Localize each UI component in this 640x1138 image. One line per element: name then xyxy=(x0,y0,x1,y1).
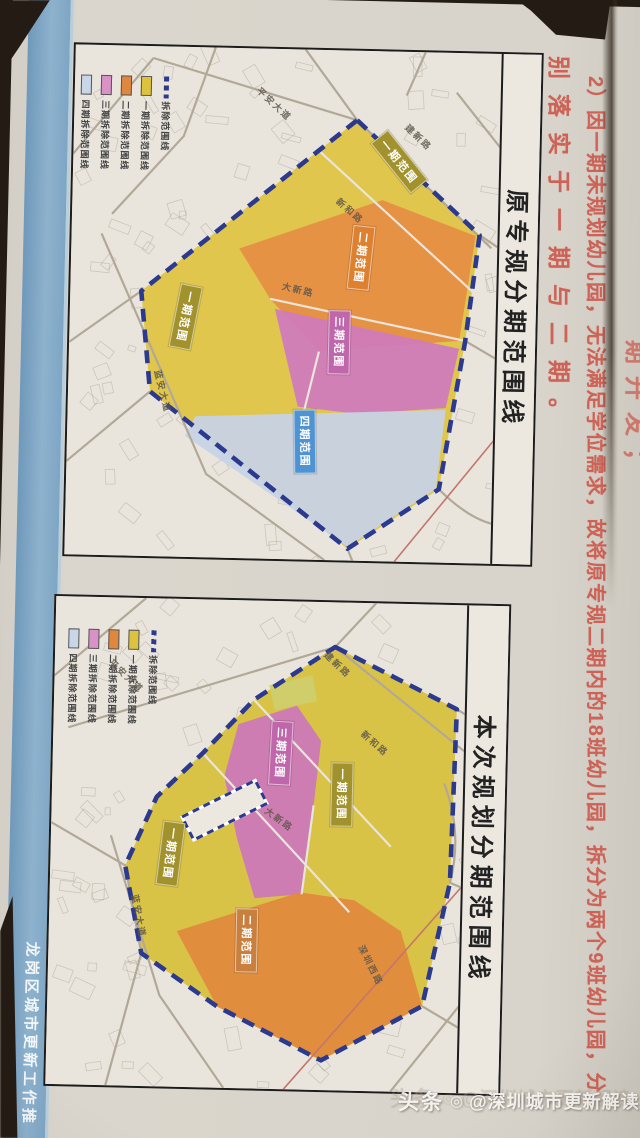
legend-swatch xyxy=(108,629,119,649)
watermark-handle: @深圳城市更新解读 xyxy=(469,1088,640,1114)
phase-badge: 一期范围 xyxy=(330,762,353,826)
map-title: 本次规划分期范围线 xyxy=(463,714,504,985)
handwritten-note-line2: 别落实于一期与二期。 xyxy=(544,56,578,486)
legend-swatch xyxy=(128,630,139,650)
phase-badge: 四期范围 xyxy=(293,409,316,473)
legend-item: 拆除范围线 xyxy=(159,76,175,191)
map-overlay: 四期拆除范围线三期拆除范围线二期拆除范围线一期拆除范围线拆除范围线三期范围一期范… xyxy=(45,596,467,1093)
legend-swatch xyxy=(81,74,92,94)
road-label: 蓝安大道 xyxy=(129,893,150,939)
phase-badge: 一期范围 xyxy=(156,821,186,887)
strip-caption: 龙岗区城市更新工作推 xyxy=(18,941,43,1126)
legend-label: 四期拆除范围线 xyxy=(65,653,80,723)
legend-swatch xyxy=(68,628,79,648)
toutiao-logo-icon: ◎ xyxy=(450,1092,463,1110)
legend-label: 二期拆除范围线 xyxy=(118,100,133,170)
legend-item: 四期拆除范围线 xyxy=(66,628,82,743)
handwritten-note-partial: 期开发； xyxy=(621,340,640,560)
watermark: 头条 ◎ @深圳城市更新解读 xyxy=(398,1086,640,1116)
legend-item: 三期拆除范围线 xyxy=(86,629,102,744)
legend-label: 四期拆除范围线 xyxy=(78,99,93,169)
legend-label: 拆除范围线 xyxy=(158,101,172,151)
legend-item: 二期拆除范围线 xyxy=(119,75,135,190)
phase-badge: 三期范围 xyxy=(327,310,350,374)
watermark-brand: 头条 xyxy=(398,1086,444,1116)
map-legend: 四期拆除范围线三期拆除范围线二期拆除范围线一期拆除范围线拆除范围线 xyxy=(66,628,162,745)
map-area: 四期拆除范围线三期拆除范围线二期拆除范围线一期拆除范围线拆除范围线三期范围一期范… xyxy=(45,596,467,1093)
road-label: 新和路 xyxy=(333,195,366,227)
legend-label: 三期拆除范围线 xyxy=(85,654,100,724)
legend-dash-icon xyxy=(164,76,169,98)
legend-swatch xyxy=(141,76,152,96)
legend-item: 拆除范围线 xyxy=(146,630,162,745)
phase-badge: 三期范围 xyxy=(268,721,294,786)
legend-label: 三期拆除范围线 xyxy=(98,100,113,170)
map-legend: 四期拆除范围线三期拆除范围线二期拆除范围线一期拆除范围线拆除范围线 xyxy=(79,74,175,191)
legend-swatch xyxy=(101,75,112,95)
road-label: 建新路 xyxy=(321,648,354,680)
road-label: 大新路 xyxy=(281,279,316,299)
map-panel-current-plan: 四期拆除范围线三期拆除范围线二期拆除范围线一期拆除范围线拆除范围线三期范围一期范… xyxy=(43,594,511,1096)
legend-item: 四期拆除范围线 xyxy=(79,74,95,189)
photo-stage: 龙岗区城市更新工作推 四期拆除范围线三期拆除范围线二期拆除范围线一期拆除范围线拆… xyxy=(0,0,640,1138)
road-label: 平安大道 xyxy=(254,84,295,124)
legend-swatch xyxy=(88,629,99,649)
legend-item: 二期拆除范围线 xyxy=(106,629,122,744)
phase-badge: 一期范围 xyxy=(169,283,203,350)
road-label: 深圳西路 xyxy=(355,943,386,988)
road-label: 蓝安大道 xyxy=(151,368,174,414)
map-panel-original-plan: 四期拆除范围线三期拆除范围线二期拆除范围线一期拆除范围线拆除范围线一期范围二期范… xyxy=(62,42,544,567)
legend-swatch xyxy=(121,75,132,95)
map-title: 原专规分期范围线 xyxy=(497,189,537,430)
legend-label: 拆除范围线 xyxy=(146,655,160,705)
legend-dash-icon xyxy=(151,630,156,652)
map-area: 四期拆除范围线三期拆除范围线二期拆除范围线一期拆除范围线拆除范围线一期范围二期范… xyxy=(64,44,501,564)
legend-label: 一期拆除范围线 xyxy=(138,101,153,171)
phase-badge: 二期范围 xyxy=(347,225,376,291)
map-overlay: 四期拆除范围线三期拆除范围线二期拆除范围线一期拆除范围线拆除范围线一期范围二期范… xyxy=(64,44,501,564)
legend-item: 一期拆除范围线 xyxy=(139,76,155,191)
road-label: 建新路 xyxy=(402,121,435,153)
page-fold-shadow xyxy=(602,0,618,640)
road-label: 大新路 xyxy=(262,804,296,834)
phase-badge: 二期范围 xyxy=(235,908,258,972)
road-label: 新和路 xyxy=(358,728,391,760)
legend-item: 三期拆除范围线 xyxy=(99,75,115,190)
